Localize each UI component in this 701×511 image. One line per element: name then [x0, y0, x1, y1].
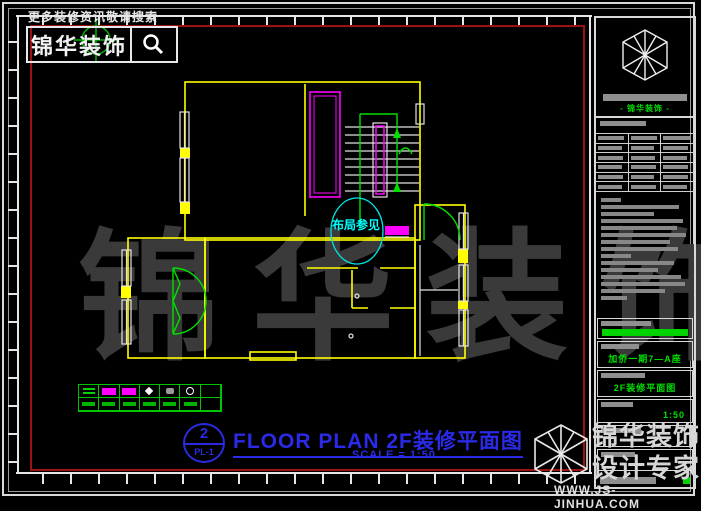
- legend-symbol-gray-mark: [160, 385, 180, 398]
- legend-symbol-magenta-rect: [120, 385, 140, 398]
- revision-table: [596, 133, 694, 192]
- legend-symbol-white-diamond: [140, 385, 160, 398]
- company-green-text: - 锦华装饰 -: [596, 103, 694, 114]
- title-block-logo-section: - 锦华装饰 -: [596, 18, 694, 118]
- sheet-code: PL-1: [185, 445, 223, 459]
- legend-label: [180, 398, 200, 411]
- brand-search-box: 锦华装饰: [26, 26, 178, 63]
- legend-label: [140, 398, 160, 411]
- sheet-number-bubble: 2 PL-1: [183, 423, 225, 463]
- legend-symbol-green-lines: [79, 385, 99, 398]
- windows-stairs-white: [122, 104, 468, 356]
- legend-label: [79, 398, 99, 411]
- project-name: 加侨一期7—A座: [601, 352, 689, 365]
- ruler-bottom: [16, 472, 592, 484]
- drawing-name: 2F装修平面图: [601, 381, 689, 394]
- field-drawing-name: 2F装修平面图: [597, 370, 693, 397]
- legend-table: [78, 384, 222, 412]
- floor-plan-drawing: 布局参见: [118, 68, 478, 368]
- field-project: 加侨一期7—A座: [597, 341, 693, 368]
- arch-cyan: 布局参见: [331, 198, 383, 264]
- field-client: [597, 318, 693, 339]
- sheet-scale: SCALE = 1:50: [352, 449, 436, 461]
- cube-logo-icon: [530, 421, 592, 487]
- magnifier-icon: [130, 28, 176, 61]
- room-label: 布局参见: [332, 217, 380, 232]
- legend-symbol-magenta-rect: [99, 385, 119, 398]
- brand-logo-text: 锦华装饰: [28, 28, 130, 61]
- legend-label: [201, 398, 221, 411]
- corner-brand-overlay: 锦华装饰 设计专家 WWW.JS-JINHUA.COM: [526, 415, 701, 502]
- legend-label: [160, 398, 180, 411]
- cube-logo-icon: [618, 26, 672, 90]
- doors-arrows-green: [173, 114, 460, 334]
- website-text: WWW.JS-JINHUA.COM: [554, 483, 701, 511]
- company-name-bar: [603, 94, 687, 101]
- legend-label: [120, 398, 140, 411]
- notes-section: [596, 192, 694, 316]
- corner-tagline-text: 设计专家: [592, 448, 700, 485]
- legend-label: [99, 398, 119, 411]
- legend-symbol-empty: [201, 385, 221, 398]
- legend-symbol-white-circle: [180, 385, 200, 398]
- sheet-number: 2: [185, 425, 223, 443]
- search-hint-text: 更多装修资讯敬请搜索: [28, 8, 158, 25]
- title-block-header-row: [596, 118, 694, 133]
- ruler-left: [8, 15, 19, 473]
